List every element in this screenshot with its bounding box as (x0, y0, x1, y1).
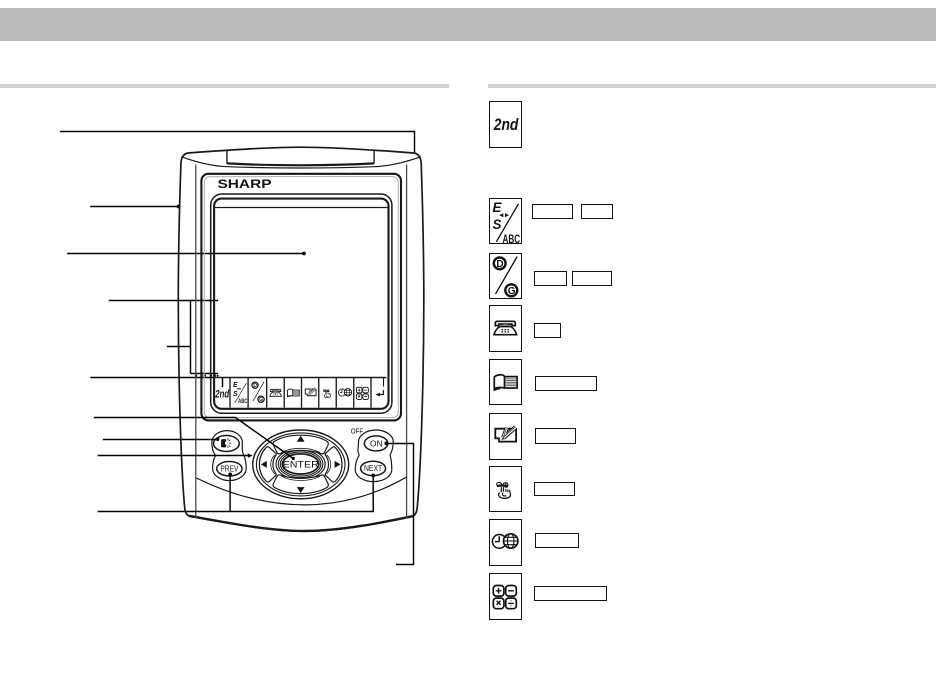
svg-text:2nd: 2nd (493, 115, 519, 134)
svg-text:SHARP: SHARP (218, 177, 272, 191)
svg-text:OFF: OFF (351, 427, 364, 436)
svg-text:2nd: 2nd (215, 388, 230, 400)
svg-text:PREV: PREV (220, 464, 239, 473)
svg-text:ON: ON (370, 438, 383, 448)
svg-text:NEXT: NEXT (364, 464, 382, 473)
svg-text:ENTER: ENTER (283, 459, 319, 470)
